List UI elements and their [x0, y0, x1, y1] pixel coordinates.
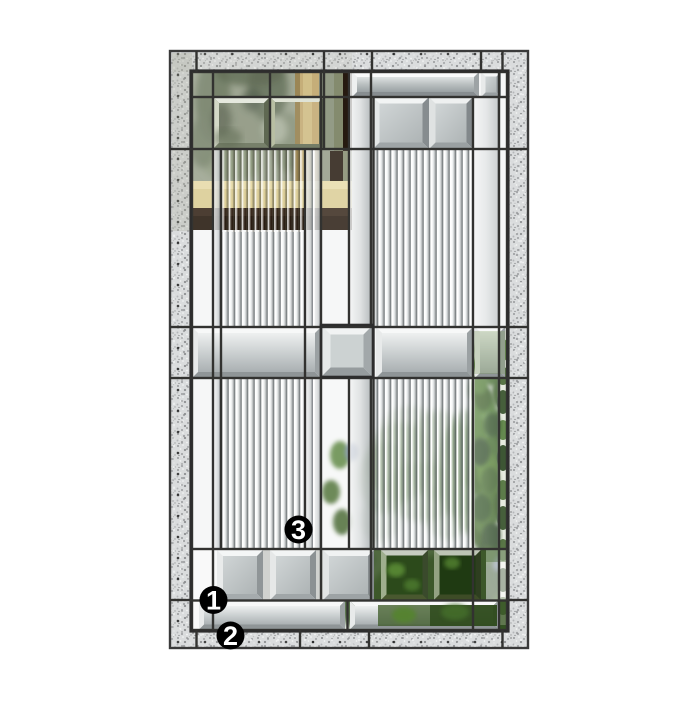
svg-text:1: 1: [206, 586, 221, 616]
svg-text:3: 3: [291, 515, 306, 545]
svg-text:2: 2: [223, 621, 238, 651]
